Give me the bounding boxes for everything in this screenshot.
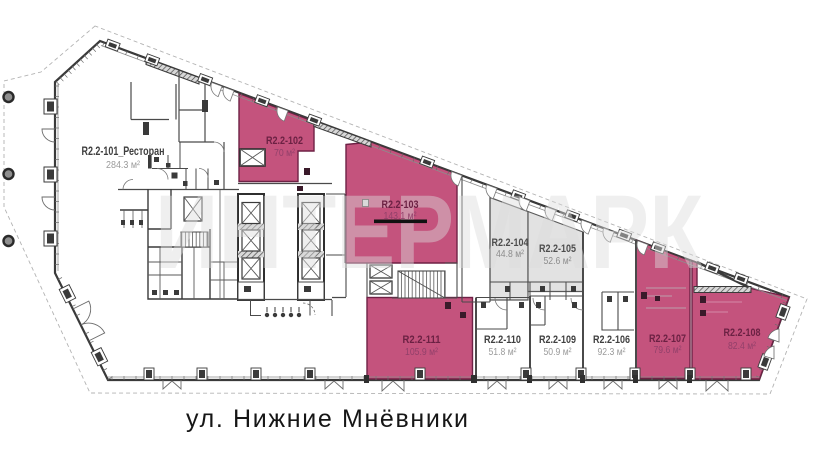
svg-text:R2.2-106: R2.2-106 [593, 334, 630, 346]
svg-text:52.6 м²: 52.6 м² [544, 255, 572, 267]
svg-text:R2.2-101_Ресторан: R2.2-101_Ресторан [82, 146, 165, 158]
svg-text:ИНТЕРМАРК: ИНТЕРМАРК [155, 174, 704, 291]
svg-text:51.8 м²: 51.8 м² [489, 346, 517, 358]
svg-text:82.4 м²: 82.4 м² [728, 340, 756, 352]
svg-text:R2.2-110: R2.2-110 [484, 334, 521, 346]
svg-text:105.9 м²: 105.9 м² [405, 346, 438, 358]
svg-text:R2.2-105: R2.2-105 [539, 243, 576, 255]
svg-text:R2.2-108: R2.2-108 [724, 327, 761, 339]
svg-text:50.9 м²: 50.9 м² [544, 346, 572, 358]
svg-text:79.6 м²: 79.6 м² [654, 344, 682, 356]
svg-text:70 м²: 70 м² [274, 147, 295, 159]
svg-text:R2.2-109: R2.2-109 [539, 334, 576, 346]
svg-text:R2.2-111: R2.2-111 [403, 334, 441, 346]
svg-text:92.3 м²: 92.3 м² [598, 346, 626, 358]
svg-text:R2.2-102: R2.2-102 [266, 135, 303, 147]
svg-text:ул. Нижние Мнёвники: ул. Нижние Мнёвники [186, 405, 468, 433]
svg-text:44.8 м²: 44.8 м² [496, 248, 524, 260]
svg-text:284.3 м²: 284.3 м² [106, 159, 140, 171]
